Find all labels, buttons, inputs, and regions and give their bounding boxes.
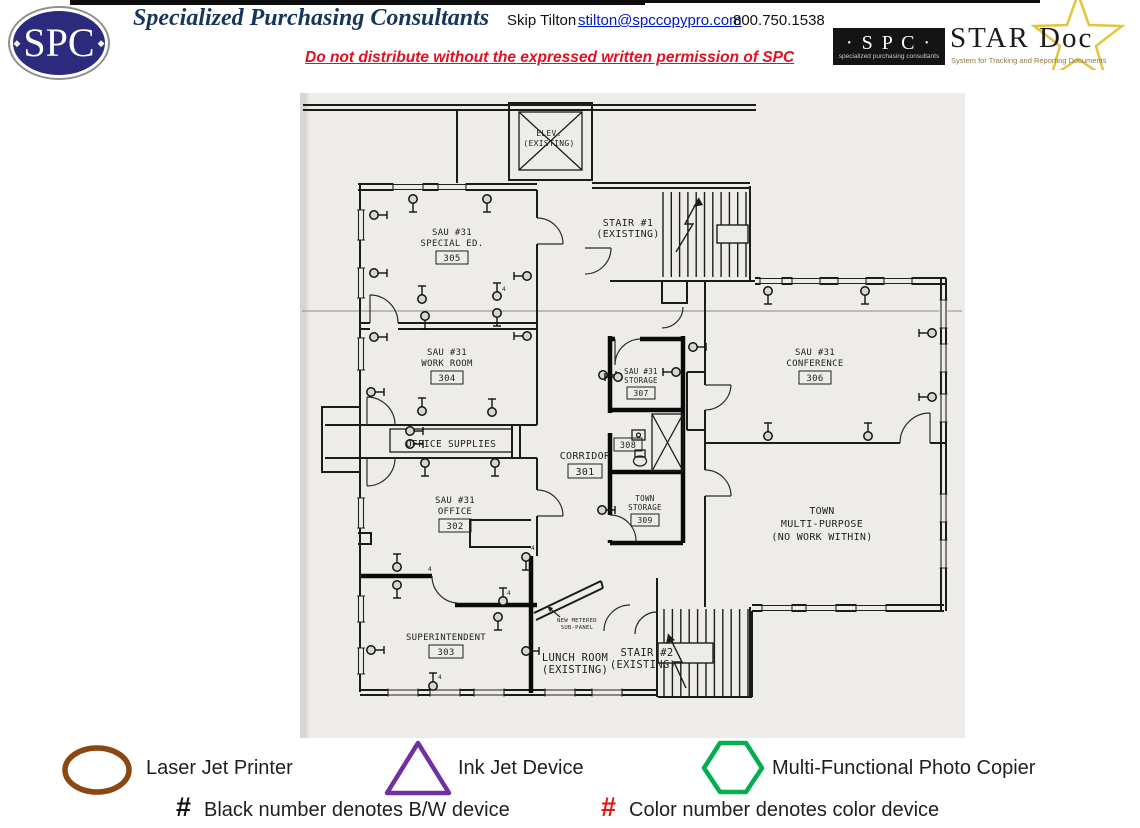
floor-plan: 44444 ELEV. (EXISTING) STAIR #1 (EXISTIN… bbox=[300, 93, 965, 738]
label-corridor: CORRIDOR bbox=[560, 451, 611, 462]
label-305: SAU #31 bbox=[432, 228, 472, 238]
laser-jet-ellipse-icon bbox=[60, 744, 134, 796]
num-301: 301 bbox=[576, 467, 595, 478]
label-lunch: LUNCH ROOM bbox=[542, 652, 608, 664]
label-elev-2: (EXISTING) bbox=[523, 139, 574, 148]
red-hash-symbol: # bbox=[601, 792, 616, 823]
legend-ink-jet-label: Ink Jet Device bbox=[458, 757, 584, 780]
legend-color-note: Color number denotes color device bbox=[629, 799, 939, 822]
stardoc-title: STAR Doc bbox=[950, 22, 1093, 55]
label-elev: ELEV. bbox=[536, 129, 562, 138]
ink-jet-triangle-icon bbox=[384, 740, 452, 797]
label-stair1-2: (EXISTING) bbox=[596, 229, 659, 240]
label-303: SUPERINTENDENT bbox=[406, 633, 486, 643]
num-304: 304 bbox=[438, 374, 455, 384]
num-306: 306 bbox=[806, 374, 823, 384]
num-305: 305 bbox=[443, 254, 460, 264]
label-305-2: SPECIAL ED. bbox=[421, 239, 484, 249]
num-309: 309 bbox=[637, 516, 652, 525]
svg-text:4: 4 bbox=[502, 286, 506, 293]
num-303: 303 bbox=[437, 648, 454, 658]
num-302: 302 bbox=[446, 522, 463, 532]
logo-text: SPC bbox=[23, 23, 94, 63]
label-307-2: STORAGE bbox=[624, 376, 658, 385]
stardoc-spc-subtext: specialized purchasing consultants bbox=[839, 54, 939, 61]
label-stair2: STAIR #2 bbox=[621, 647, 674, 659]
num-308: 308 bbox=[620, 441, 636, 451]
distribution-notice: Do not distribute without the expressed … bbox=[305, 49, 794, 67]
logo-diamond-left-icon: ◆ bbox=[13, 38, 20, 49]
label-302-2: OFFICE bbox=[438, 507, 472, 517]
legend-copier-label: Multi-Functional Photo Copier bbox=[772, 757, 1035, 780]
label-stair2-2: (EXISTING) bbox=[610, 659, 676, 671]
contact-email-link[interactable]: stilton@spccopypro.com bbox=[578, 12, 742, 29]
svg-text:4: 4 bbox=[507, 590, 511, 597]
label-multipurpose: TOWN bbox=[809, 506, 834, 517]
scan-edge-shadow-2 bbox=[306, 93, 309, 738]
contact-name: Skip Tilton bbox=[507, 12, 576, 29]
spc-logo-oval: ◆ SPC ◆ bbox=[13, 11, 105, 75]
svg-text:4: 4 bbox=[428, 566, 432, 573]
svg-text:4: 4 bbox=[531, 545, 535, 552]
stardoc-spc-box: · S P C · specialized purchasing consult… bbox=[833, 28, 945, 65]
stardoc-tagline: System for Tracking and Reporting Docume… bbox=[951, 56, 1107, 65]
label-office-supplies: OFFICE SUPPLIES bbox=[406, 439, 496, 450]
stardoc-spc-text: · S P C · bbox=[846, 32, 932, 54]
label-306: SAU #31 bbox=[795, 348, 835, 358]
svg-text:4: 4 bbox=[438, 674, 442, 681]
label-stair1: STAIR #1 bbox=[603, 218, 654, 229]
company-title: Specialized Purchasing Consultants bbox=[133, 5, 489, 32]
floor-plan-svg: 44444 ELEV. (EXISTING) STAIR #1 (EXISTIN… bbox=[300, 93, 965, 738]
label-304: SAU #31 bbox=[427, 348, 467, 358]
contact-phone: 800.750.1538 bbox=[733, 12, 825, 29]
label-307: SAU #31 bbox=[624, 367, 658, 376]
label-309-2: STORAGE bbox=[628, 503, 662, 512]
label-lunch-2: (EXISTING) bbox=[542, 664, 608, 676]
logo-diamond-right-icon: ◆ bbox=[98, 38, 105, 49]
label-multipurpose-2: MULTI-PURPOSE bbox=[781, 519, 863, 530]
scan-edge-shadow bbox=[300, 93, 306, 738]
copier-hexagon-icon bbox=[700, 740, 766, 796]
label-subpanel-2: SUB-PANEL bbox=[561, 625, 594, 631]
spc-logo: ◆ SPC ◆ bbox=[8, 6, 110, 80]
label-multipurpose-3: (NO WORK WITHIN) bbox=[771, 532, 872, 543]
black-hash-symbol: # bbox=[176, 792, 191, 823]
label-306-2: CONFERENCE bbox=[786, 359, 843, 369]
page: ◆ SPC ◆ Specialized Purchasing Consultan… bbox=[0, 0, 1140, 828]
label-302: SAU #31 bbox=[435, 496, 475, 506]
label-309: TOWN bbox=[635, 494, 654, 503]
legend-laser-jet-label: Laser Jet Printer bbox=[146, 757, 293, 780]
stardoc-logo: · S P C · specialized purchasing consult… bbox=[828, 0, 1140, 70]
num-307: 307 bbox=[633, 389, 648, 398]
label-304-2: WORK ROOM bbox=[421, 359, 473, 369]
legend-bw-note: Black number denotes B/W device bbox=[204, 799, 510, 822]
label-subpanel: NEW METERED bbox=[557, 618, 597, 624]
